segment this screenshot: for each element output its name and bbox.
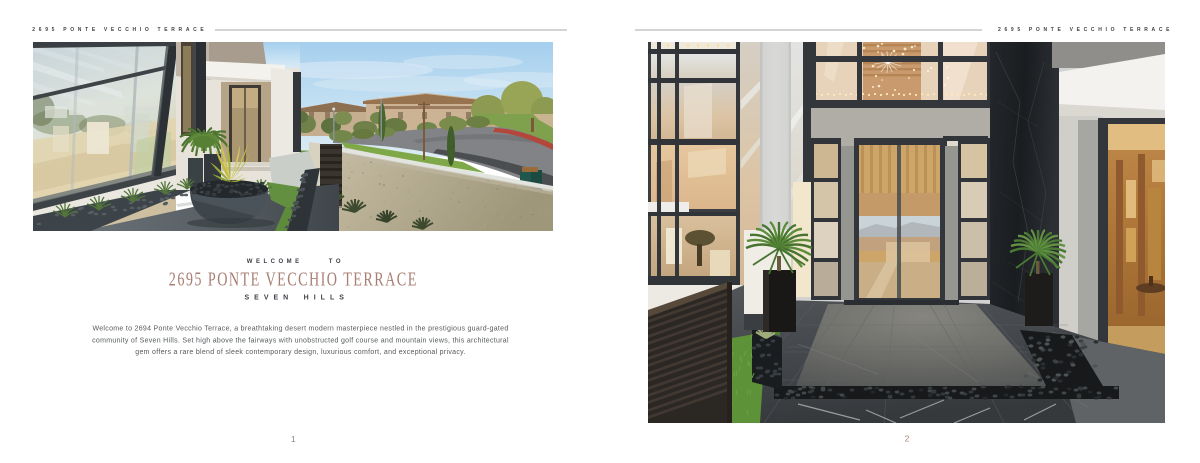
svg-text:community of Seven Hills. Set: community of Seven Hills. Set high above… xyxy=(92,337,509,344)
svg-text:2695 PONTE VECCHIO TERRACE: 2695 PONTE VECCHIO TERRACE xyxy=(32,27,207,33)
svg-text:SEVEN HILLS: SEVEN HILLS xyxy=(245,295,349,302)
svg-text:Welcome to 2694 Ponte Vecchio: Welcome to 2694 Ponte Vecchio Terrace, a… xyxy=(92,326,508,333)
svg-text:1: 1 xyxy=(291,434,296,444)
svg-text:WELCOME TO: WELCOME TO xyxy=(247,259,344,265)
svg-text:2: 2 xyxy=(905,434,910,444)
svg-text:2695 PONTE VECCHIO TERRACE: 2695 PONTE VECCHIO TERRACE xyxy=(998,27,1173,33)
svg-text:2695 PONTE VECCHIO TERRACE: 2695 PONTE VECCHIO TERRACE xyxy=(169,270,418,291)
svg-text:gem offers a rare blend of sle: gem offers a rare blend of sleek contemp… xyxy=(135,349,465,356)
